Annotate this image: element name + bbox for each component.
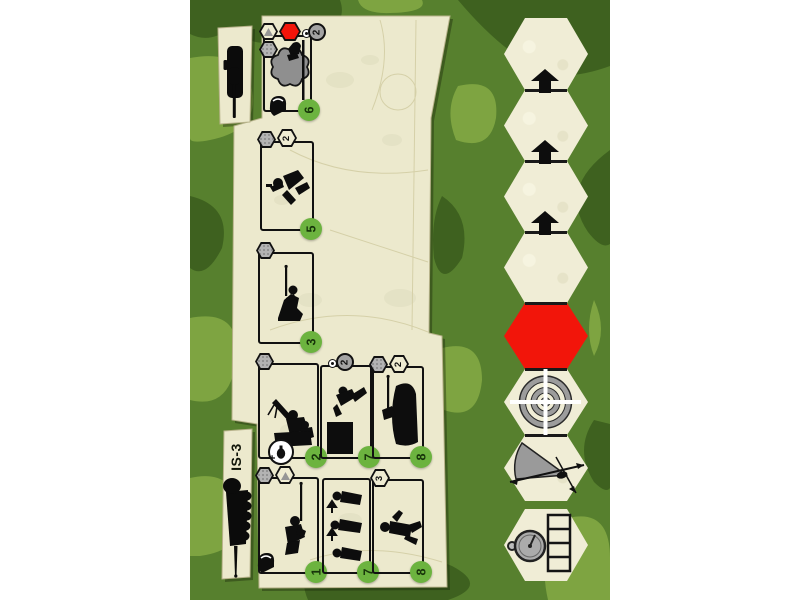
- cost-badge: 6: [298, 99, 320, 121]
- hex-value: 3: [374, 475, 385, 480]
- action-card-crawl[interactable]: 2 5: [260, 141, 314, 231]
- ammo-circle-icon: 2: [336, 353, 354, 371]
- turn-track-cells: [548, 515, 570, 571]
- game-board: IS-3: [190, 0, 610, 600]
- cost-badge: 8: [410, 446, 432, 468]
- unit-name-label: IS-3: [228, 429, 246, 485]
- stopwatch-icon: [504, 509, 588, 581]
- action-card-advance[interactable]: 7: [322, 478, 371, 574]
- action-card-sniper[interactable]: 1: [258, 477, 319, 574]
- up-arrow-icon: [530, 69, 560, 93]
- screenshot-stage: IS-3: [0, 0, 800, 600]
- up-arrow-icon: [530, 211, 560, 235]
- target-crosshair-icon: [510, 369, 581, 435]
- action-card-kneel[interactable]: 3: [258, 252, 314, 344]
- crawling-soldier-art: [262, 143, 312, 229]
- up-arrow-icon: [530, 140, 560, 164]
- fire-arc-icon: [504, 435, 588, 501]
- action-card-assault[interactable]: 2 7: [320, 365, 372, 459]
- rifleman-in-cover-art: [374, 368, 422, 457]
- cost-badge: 5: [300, 218, 322, 240]
- standing-rifleman-art: [374, 481, 422, 572]
- action-card-smoke[interactable]: 2 6: [263, 35, 312, 112]
- ammo-value: 2: [312, 29, 323, 35]
- hex-value: 2: [281, 135, 292, 140]
- hex-value: 2: [393, 361, 404, 366]
- helmet-icon: [256, 551, 276, 577]
- ammo-value: 2: [340, 359, 351, 365]
- helmet-icon: [268, 94, 288, 120]
- grenade-plus: +: [267, 455, 279, 461]
- advancing-squad-art: [324, 480, 369, 572]
- kneeling-rifleman-art: [260, 254, 312, 342]
- ammo-circle-icon: 2: [308, 23, 326, 41]
- action-card-mg-team[interactable]: + 2: [258, 363, 319, 459]
- action-card-overwatch[interactable]: 2 8: [372, 366, 424, 459]
- vaulting-soldier-art: [322, 367, 370, 457]
- action-card-rifleman[interactable]: 3 8: [372, 479, 424, 574]
- grenade-circle-icon: +: [268, 439, 294, 465]
- cost-badge: 8: [410, 561, 432, 583]
- hex-junction-line: [525, 302, 567, 305]
- cost-badge: 3: [300, 331, 322, 353]
